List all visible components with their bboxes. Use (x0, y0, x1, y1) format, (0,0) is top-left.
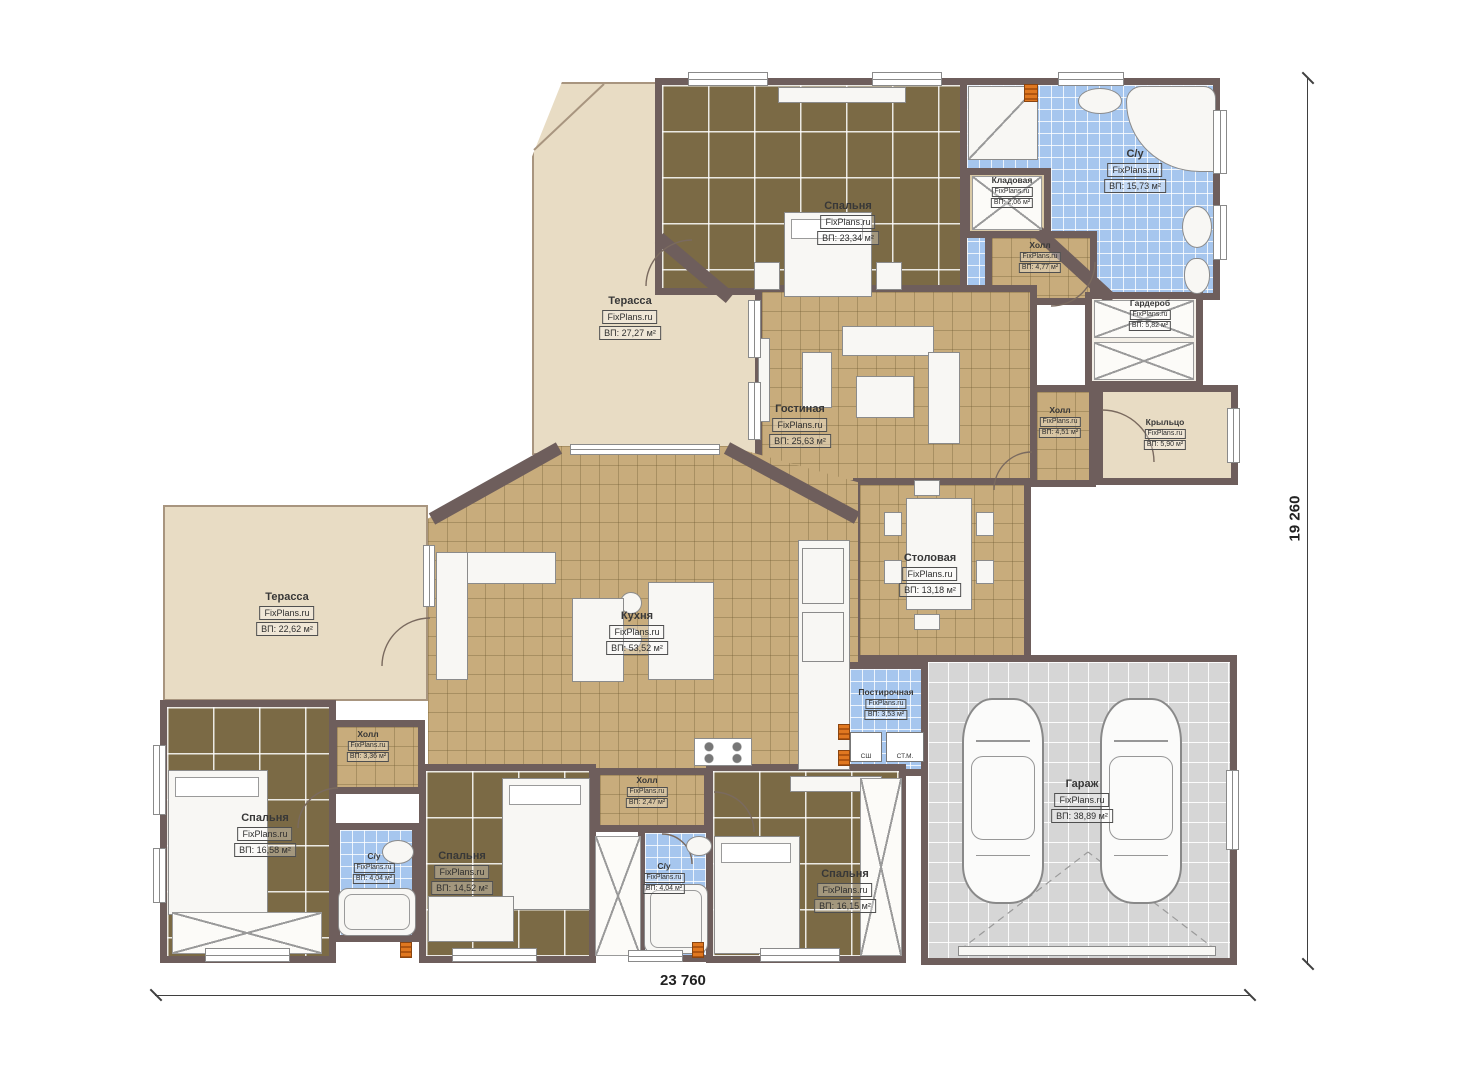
room-label-hall-top: Холл FixPlans.ru ВП: 4,77 м² (1019, 241, 1061, 273)
wall-diagonal-bedroom-top (659, 238, 730, 298)
window (628, 950, 683, 962)
room-label-terrace-top: Терасса FixPlans.ru ВП: 27,27 м² (599, 295, 661, 340)
sink (1182, 206, 1212, 248)
vent-icon (838, 750, 850, 766)
sink (1078, 88, 1122, 114)
window (760, 948, 840, 962)
sofa (928, 352, 960, 444)
room-label-garage: Гараж FixPlans.ru ВП: 38,89 м² (1051, 778, 1113, 823)
room-label-bedroom-left: Спальня FixPlans.ru ВП: 16,58 м² (234, 812, 296, 857)
vent-icon (838, 724, 850, 740)
room-label-bath-left: С/у FixPlans.ru ВП: 4,04 м² (353, 852, 395, 884)
washer-label: СШ (861, 753, 872, 760)
car (962, 698, 1044, 904)
floor-plan-canvas: СШ СТ.М. Терасса FixPlans.ru ВП: 27,27 м… (0, 0, 1474, 1080)
window (1226, 770, 1239, 850)
room-label-bedroom-mid: Спальня FixPlans.ru ВП: 14,52 м² (431, 850, 493, 895)
window (570, 444, 720, 455)
dryer: СТ.М. (886, 732, 924, 762)
chair (976, 512, 994, 536)
room-label-terrace-left: Терасса FixPlans.ru ВП: 22,62 м² (256, 591, 318, 636)
chair (914, 614, 940, 630)
window (1213, 205, 1227, 260)
bed (714, 836, 800, 954)
room-label-dining: Столовая FixPlans.ru ВП: 13,18 м² (899, 552, 961, 597)
fridge (802, 548, 844, 604)
wardrobe-unit (595, 836, 641, 956)
vent-icon (1024, 84, 1038, 102)
coffee-table (856, 376, 914, 418)
sink (686, 836, 712, 856)
desk (428, 896, 514, 942)
window (205, 948, 290, 962)
window (153, 745, 166, 815)
terrace-corner-line (534, 84, 604, 150)
window (748, 382, 761, 440)
nightstand (876, 262, 902, 290)
window (153, 848, 166, 903)
room-label-hall-entry: Холл FixPlans.ru ВП: 4,51 м² (1039, 406, 1081, 438)
window (748, 300, 761, 358)
room-label-bath-mid: С/у FixPlans.ru ВП: 4,04 м² (643, 862, 685, 894)
window (1213, 110, 1227, 174)
washer: СШ (850, 732, 882, 762)
dimension-width-label: 23 760 (660, 972, 706, 989)
armchair (802, 352, 832, 408)
room-label-hall-mid: Холл FixPlans.ru ВП: 2,47 м² (626, 776, 668, 808)
wardrobe-unit (860, 778, 902, 956)
room-label-bath-master: С/у FixPlans.ru ВП: 15,73 м² (1104, 148, 1166, 193)
vent-icon (692, 942, 704, 958)
chair (884, 512, 902, 536)
room-label-bedroom-right: Спальня FixPlans.ru ВП: 16,15 м² (814, 868, 876, 913)
window (1058, 72, 1124, 86)
nightstand (754, 262, 780, 290)
window (872, 72, 942, 86)
dryer-label: СТ.М. (897, 753, 914, 760)
room-label-bedroom-top: Спальня FixPlans.ru ВП: 23,34 м² (817, 200, 879, 245)
room-label-pantry: Кладовая FixPlans.ru ВП: 2,06 м² (991, 176, 1033, 208)
kitchen-cabinet (802, 612, 844, 662)
sofa (842, 326, 934, 356)
dimension-line-right (1307, 78, 1308, 965)
sofa (436, 552, 468, 680)
stove (694, 738, 752, 766)
wardrobe-unit (1094, 342, 1194, 380)
vent-icon (400, 942, 412, 958)
wall-diagonal-kitchen-right (727, 448, 857, 518)
chair (914, 480, 940, 496)
window (688, 72, 768, 86)
room-label-living: Гостиная FixPlans.ru ВП: 25,63 м² (769, 403, 831, 448)
bed (502, 778, 590, 910)
room-label-wardrobe: Гардероб FixPlans.ru ВП: 5,82 м² (1129, 299, 1171, 331)
wall-diagonal-kitchen-left (432, 448, 559, 519)
room-label-laundry: Постирочная FixPlans.ru ВП: 3,53 м² (858, 688, 913, 720)
bathtub (338, 888, 416, 936)
window (1227, 408, 1240, 463)
dresser (778, 87, 906, 103)
garage-door (958, 946, 1216, 956)
dimension-height-label: 19 260 (1286, 496, 1303, 542)
room-label-hall-left: Холл FixPlans.ru ВП: 3,36 м² (347, 730, 389, 762)
chair (976, 560, 994, 584)
room-label-kitchen: Кухня FixPlans.ru ВП: 53,52 м² (606, 610, 668, 655)
room-label-porch: Крыльцо FixPlans.ru ВП: 5,90 м² (1144, 418, 1186, 450)
window (423, 545, 435, 607)
toilet (1184, 258, 1210, 294)
window (452, 948, 537, 962)
dimension-line-bottom (155, 995, 1250, 996)
